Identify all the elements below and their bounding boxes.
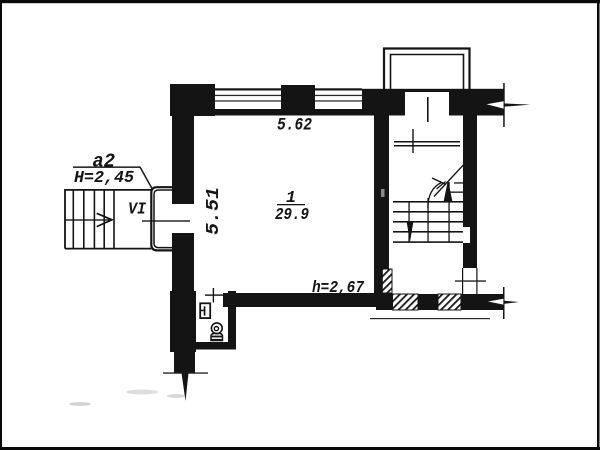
svg-text:29.9: 29.9 xyxy=(275,205,309,224)
svg-text:VI: VI xyxy=(128,200,146,219)
svg-text:5.51: 5.51 xyxy=(204,187,224,235)
svg-text:H=2,45: H=2,45 xyxy=(74,168,134,187)
svg-text:5.62: 5.62 xyxy=(277,116,312,136)
